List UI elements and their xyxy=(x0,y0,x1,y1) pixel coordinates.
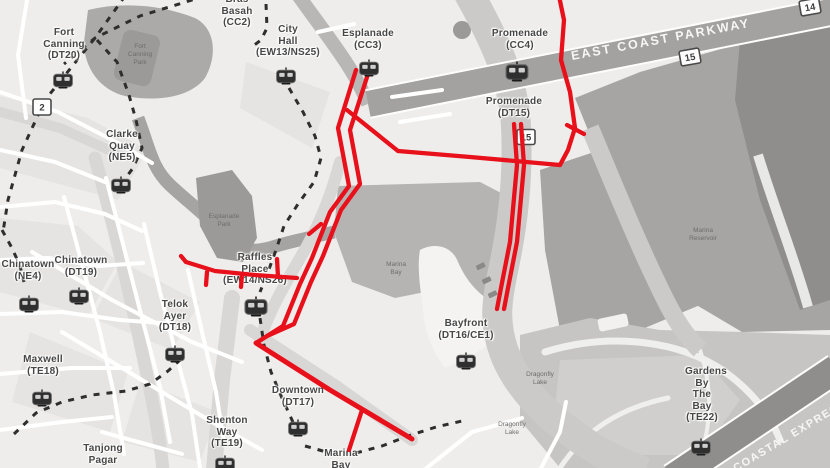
label-clarke-quay: Clarke Quay(NE5) xyxy=(104,129,140,164)
label-gardens-by-the-bay: Gardens By The Bay(TE22) xyxy=(685,366,719,424)
label-downtown: Downtown(DT17) xyxy=(265,385,331,408)
label-maxwell: Maxwell(TE18) xyxy=(13,354,73,377)
label-fort-canning: Fort Canning(DT20) xyxy=(43,27,85,62)
label-tanjong-pagar: Tanjong Pagar xyxy=(80,443,126,466)
label-bayfront: Bayfront(DT16/CE1) xyxy=(433,318,499,341)
label-esplanade: Esplanade(CC3) xyxy=(333,28,403,51)
label-telok-ayer: Telok Ayer(DT18) xyxy=(159,299,191,334)
label-raffles-place: Raffles Place(EW14/NS26) xyxy=(223,252,287,287)
label-city-hall: City Hall(EW13/NS25) xyxy=(256,24,320,59)
label-shenton-way: Shenton Way(TE19) xyxy=(204,415,250,450)
map-canvas[interactable]: EAST COAST PARKWAY COASTAL EXPRESSWAY Fo… xyxy=(0,0,830,468)
label-chinatown-dt19: Chinatown(DT19) xyxy=(46,255,116,278)
label-marina-bay: Marina Bay xyxy=(321,448,361,468)
station-labels: Fort Canning(DT20) Bras Basah(CC2) City … xyxy=(0,0,830,468)
label-promenade-dt15: Promenade(DT15) xyxy=(476,96,552,119)
label-promenade-cc4: Promenade(CC4) xyxy=(482,28,558,51)
label-bras-basah: Bras Basah(CC2) xyxy=(221,0,253,29)
